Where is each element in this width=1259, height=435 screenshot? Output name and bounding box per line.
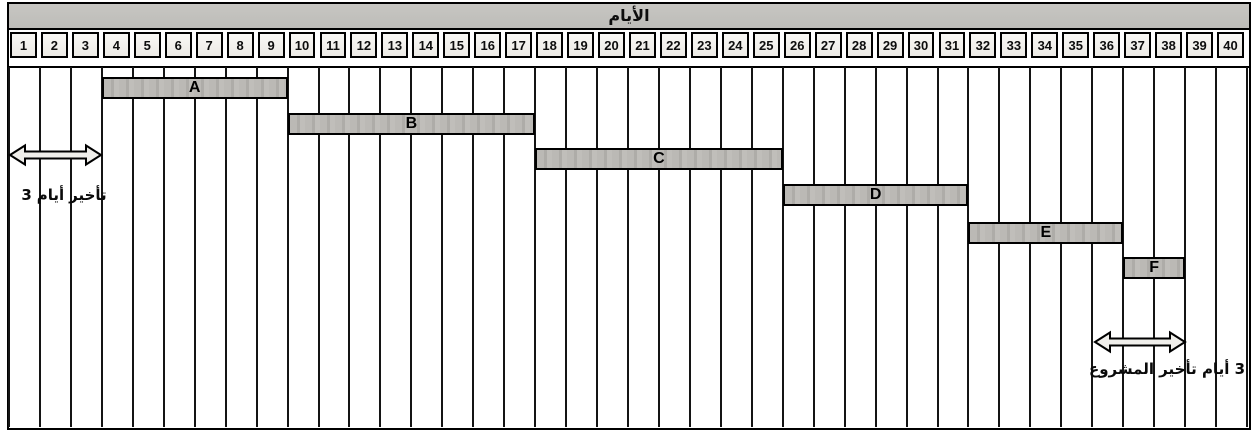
day-cell: 24	[722, 32, 749, 58]
day-gridline	[844, 67, 846, 427]
day-cell: 7	[196, 32, 223, 58]
day-gridline	[751, 67, 753, 427]
days-header-band: الأيام	[9, 4, 1249, 30]
day-cell: 12	[350, 32, 377, 58]
task-bar-label: E	[1040, 225, 1051, 241]
task-bar: A	[102, 77, 288, 99]
day-gridline	[256, 67, 258, 427]
day-cell: 6	[165, 32, 192, 58]
day-gridline	[782, 67, 784, 427]
day-gridline	[967, 67, 969, 427]
project-delay-label: 3 أيام تأخير المشروع	[1089, 360, 1245, 378]
day-cell: 19	[567, 32, 594, 58]
day-gridline	[627, 67, 629, 427]
day-gridline	[132, 67, 134, 427]
day-cell: 15	[443, 32, 470, 58]
day-gridline	[937, 67, 939, 427]
day-cell: 17	[505, 32, 532, 58]
day-cell: 36	[1093, 32, 1120, 58]
day-gridline	[998, 67, 1000, 427]
day-cell: 20	[598, 32, 625, 58]
day-cell: 34	[1031, 32, 1058, 58]
day-gridline	[565, 67, 567, 427]
day-gridline	[225, 67, 227, 427]
day-cell: 8	[227, 32, 254, 58]
day-cell: 5	[134, 32, 161, 58]
task-bar: E	[968, 222, 1123, 244]
day-cell: 1	[10, 32, 37, 58]
day-gridline	[70, 67, 72, 427]
day-gridline	[596, 67, 598, 427]
day-cell: 22	[660, 32, 687, 58]
start-delay-label-part: تأخير	[69, 186, 107, 204]
day-gridline	[658, 67, 660, 427]
day-gridline	[194, 67, 196, 427]
day-cell: 18	[536, 32, 563, 58]
task-bar: C	[535, 148, 783, 170]
day-gridline	[163, 67, 165, 427]
task-bar-label: D	[870, 187, 882, 203]
day-gridline	[1246, 67, 1248, 427]
day-gridline	[689, 67, 691, 427]
day-cell: 37	[1124, 32, 1151, 58]
task-bar-label: B	[406, 116, 418, 132]
day-gridline	[101, 67, 103, 427]
start-delay-label-part: 3	[21, 186, 31, 204]
day-cell: 9	[258, 32, 285, 58]
day-gridline	[813, 67, 815, 427]
task-bar-label: A	[189, 80, 201, 96]
gantt-chart-figure: الأيام 123456789101112131415161718192021…	[0, 0, 1259, 435]
day-cell: 39	[1186, 32, 1213, 58]
day-gridline	[8, 67, 10, 427]
day-cell: 2	[41, 32, 68, 58]
task-bar-label: C	[653, 151, 665, 167]
day-cell: 23	[691, 32, 718, 58]
day-cell: 4	[103, 32, 130, 58]
day-cell: 13	[381, 32, 408, 58]
day-gridline	[906, 67, 908, 427]
day-cell: 35	[1062, 32, 1089, 58]
day-cell: 31	[939, 32, 966, 58]
day-cell: 25	[753, 32, 780, 58]
day-gridline	[720, 67, 722, 427]
start-delay-arrow-icon	[9, 143, 102, 167]
project-delay-arrow-icon	[1094, 330, 1186, 354]
day-cell: 38	[1155, 32, 1182, 58]
day-cell: 11	[320, 32, 347, 58]
days-header-title: الأيام	[608, 8, 649, 24]
day-cell: 32	[969, 32, 996, 58]
day-cell: 16	[474, 32, 501, 58]
day-cell: 27	[815, 32, 842, 58]
day-gridline	[875, 67, 877, 427]
day-cell: 29	[877, 32, 904, 58]
day-cell: 10	[289, 32, 316, 58]
task-bar: D	[783, 184, 969, 206]
start-delay-label-part: أيام	[37, 186, 64, 204]
day-cell: 28	[846, 32, 873, 58]
day-cell: 33	[1000, 32, 1027, 58]
task-bar: F	[1123, 257, 1185, 279]
task-bar: B	[288, 113, 536, 135]
day-cell: 14	[412, 32, 439, 58]
day-cell: 30	[908, 32, 935, 58]
day-gridline	[39, 67, 41, 427]
day-gridline	[1029, 67, 1031, 427]
day-cell: 21	[629, 32, 656, 58]
start-delay-label: 3 أيام تأخير	[14, 186, 114, 204]
day-cell: 3	[72, 32, 99, 58]
day-cell: 40	[1217, 32, 1244, 58]
day-gridline	[1060, 67, 1062, 427]
day-cell: 26	[784, 32, 811, 58]
task-bar-label: F	[1149, 260, 1159, 276]
